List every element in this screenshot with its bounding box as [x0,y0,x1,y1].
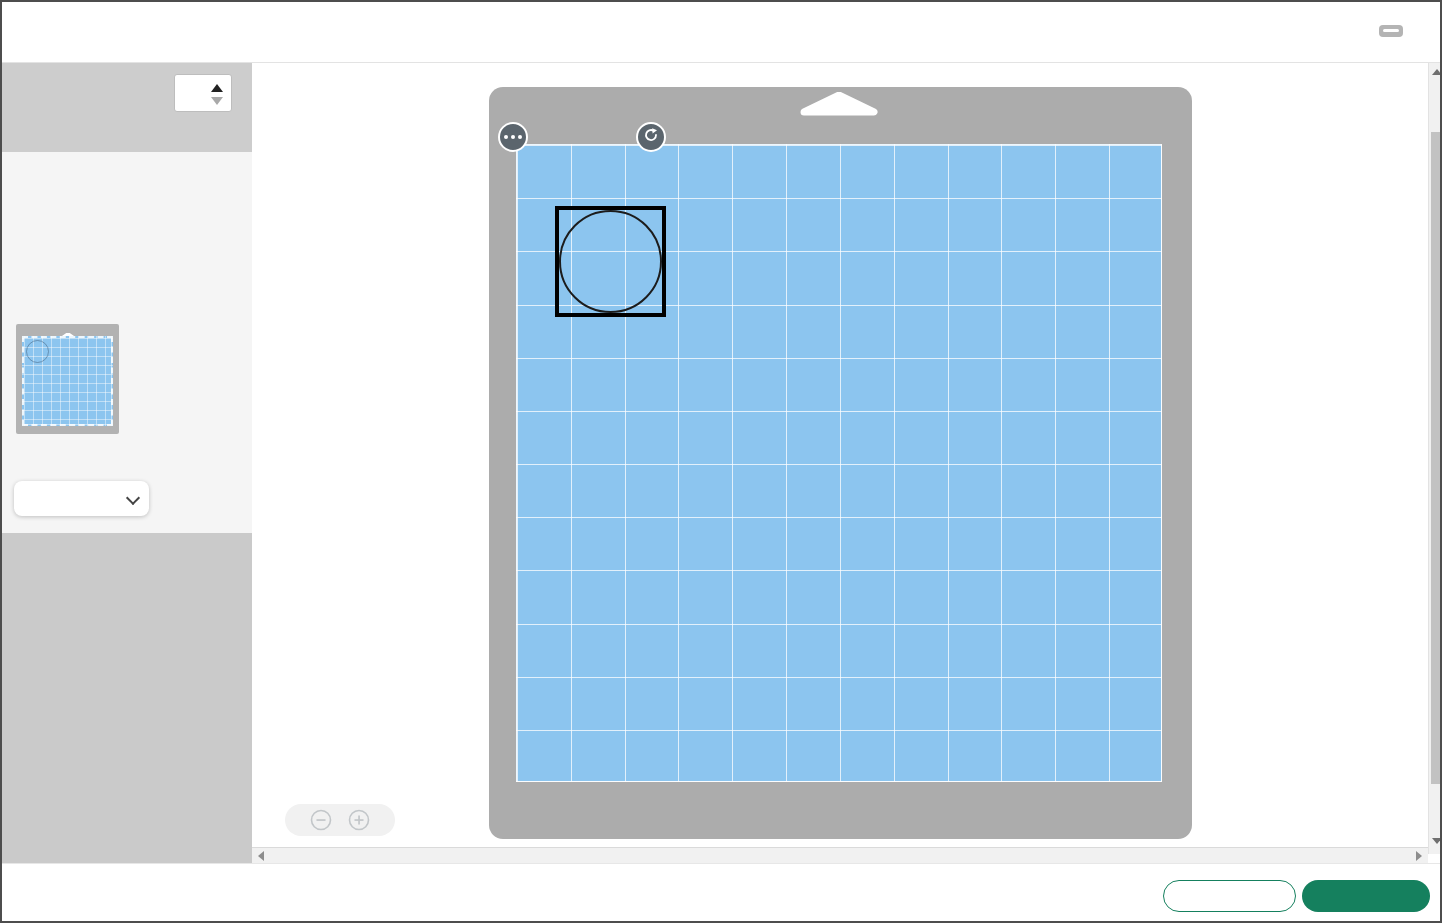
machine-selector[interactable] [1379,23,1410,42]
selected-object-bounding-box[interactable] [555,206,666,317]
sidebar-empty-section [2,533,252,864]
project-copies-input[interactable] [174,74,232,112]
copies-increment-arrow-icon[interactable] [211,84,223,92]
scroll-up-arrow-icon[interactable] [1432,69,1442,75]
vertical-scrollbar-thumb[interactable] [1431,132,1442,784]
footer-bar [2,863,1440,921]
zoom-in-button[interactable] [348,809,370,831]
circle-shape [559,210,662,313]
copies-decrement-arrow-icon[interactable] [211,97,223,105]
mat-canvas [252,63,1428,847]
app-window [0,0,1442,923]
more-options-button[interactable] [498,122,528,152]
thumbnail-grid [22,336,113,426]
scroll-left-arrow-icon[interactable] [258,851,264,861]
rotate-icon [643,127,659,147]
zoom-control [285,804,395,836]
mat-tab-shape [800,92,878,120]
scroll-right-arrow-icon[interactable] [1416,851,1422,861]
continue-button[interactable] [1302,880,1430,912]
ellipsis-icon [504,135,522,139]
cutting-mat [489,87,1192,839]
mat-grid-area[interactable] [516,144,1162,782]
material-load-type-dropdown[interactable] [14,481,149,516]
zoom-out-button[interactable] [310,809,332,831]
sidebar-settings-section [2,152,252,533]
horizontal-scrollbar[interactable] [252,847,1428,863]
scroll-down-arrow-icon[interactable] [1432,838,1442,844]
chevron-down-icon [128,493,138,503]
machine-icon [1379,23,1403,42]
mat-thumbnail[interactable] [16,324,119,434]
rotate-button[interactable] [636,122,666,152]
thumbnail-circle-shape [26,340,49,363]
vertical-scrollbar[interactable] [1428,63,1442,854]
header-bar [2,2,1440,63]
cancel-button[interactable] [1163,880,1296,912]
